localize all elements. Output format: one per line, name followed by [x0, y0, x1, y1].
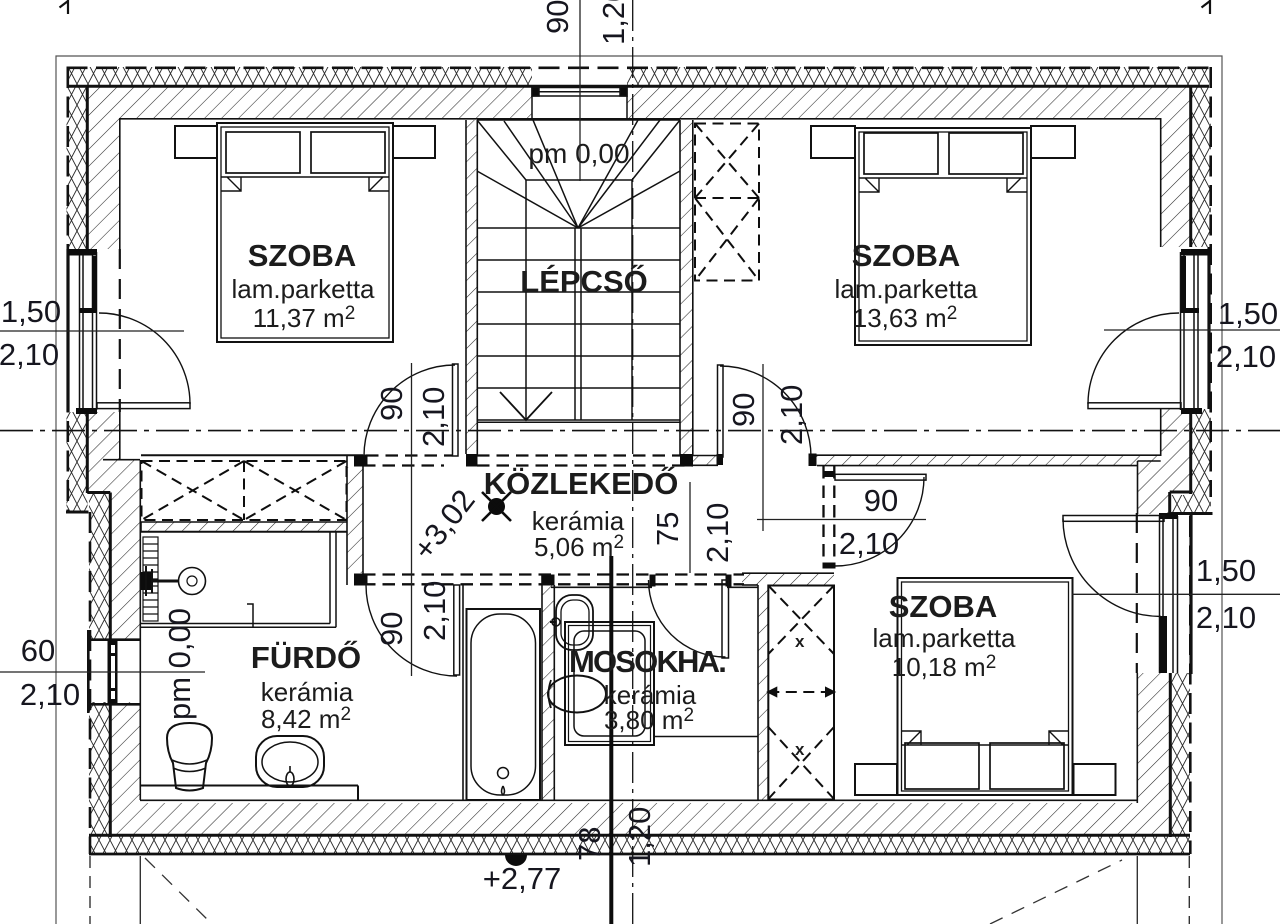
svg-text:x: x [795, 632, 805, 651]
svg-text:75: 75 [650, 512, 685, 546]
svg-text:x: x [795, 740, 805, 759]
svg-text:SZOBA: SZOBA [852, 238, 961, 273]
svg-text:2,10: 2,10 [0, 337, 59, 372]
svg-text:13,63 m2: 13,63 m2 [853, 303, 958, 333]
svg-text:1,50: 1,50 [1218, 296, 1278, 331]
svg-text:2,10: 2,10 [700, 503, 735, 563]
svg-text:90: 90 [374, 612, 409, 646]
svg-text:60: 60 [21, 633, 55, 668]
svg-text:10,18 m2: 10,18 m2 [892, 652, 997, 682]
svg-text:2,10: 2,10 [1196, 600, 1256, 635]
svg-text:90: 90 [374, 387, 409, 421]
svg-text:SZOBA: SZOBA [248, 238, 357, 273]
svg-text:2,10: 2,10 [416, 387, 451, 447]
svg-text:pm 0,00: pm 0,00 [162, 608, 197, 720]
svg-text:2,10: 2,10 [1216, 339, 1276, 374]
svg-text:90: 90 [726, 393, 761, 427]
svg-text:2,10: 2,10 [774, 385, 809, 445]
svg-text:1,20: 1,20 [622, 807, 657, 867]
svg-text:11,37 m2: 11,37 m2 [253, 303, 356, 333]
svg-text:MOSOKHA.: MOSOKHA. [569, 644, 725, 679]
svg-text:2,10: 2,10 [417, 581, 452, 641]
svg-text:1,20: 1,20 [596, 0, 631, 45]
svg-text:FÜRDŐ: FÜRDŐ [251, 639, 361, 675]
svg-text:1,50: 1,50 [1, 294, 61, 329]
svg-text:+2,77: +2,77 [483, 861, 561, 896]
svg-text:2,10: 2,10 [839, 526, 899, 561]
svg-text:lam.parketta: lam.parketta [834, 274, 978, 304]
svg-text:SZOBA: SZOBA [889, 589, 998, 624]
svg-text:1,50: 1,50 [1196, 553, 1256, 588]
svg-text:8,42 m2: 8,42 m2 [261, 704, 351, 734]
svg-text:LÉPCSŐ: LÉPCSŐ [520, 263, 647, 299]
svg-text:78: 78 [572, 827, 607, 861]
svg-text:pm 0,00: pm 0,00 [528, 138, 629, 169]
svg-text:2,10: 2,10 [20, 677, 80, 712]
svg-text:lam.parketta: lam.parketta [231, 274, 375, 304]
svg-text:KÖZLEKEDŐ: KÖZLEKEDŐ [484, 465, 679, 501]
svg-text:5,06 m2: 5,06 m2 [534, 532, 624, 562]
svg-text:kerámia: kerámia [261, 677, 354, 707]
svg-text:3,80 m2: 3,80 m2 [604, 705, 694, 735]
svg-text:lam.parketta: lam.parketta [872, 623, 1016, 653]
svg-text:90: 90 [540, 0, 575, 34]
svg-text:90: 90 [864, 483, 898, 518]
